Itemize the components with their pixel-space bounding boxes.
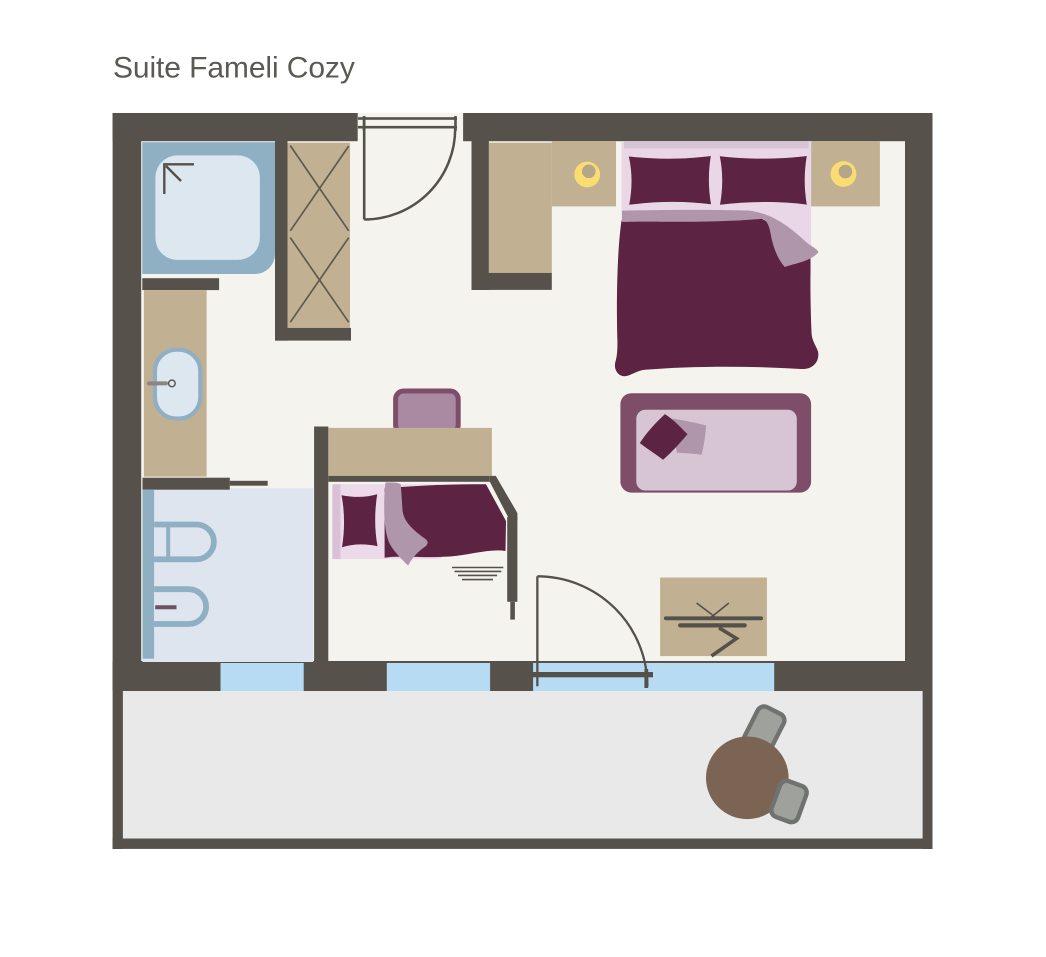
svg-text:Suite Fameli Cozy: Suite Fameli Cozy (113, 52, 355, 85)
